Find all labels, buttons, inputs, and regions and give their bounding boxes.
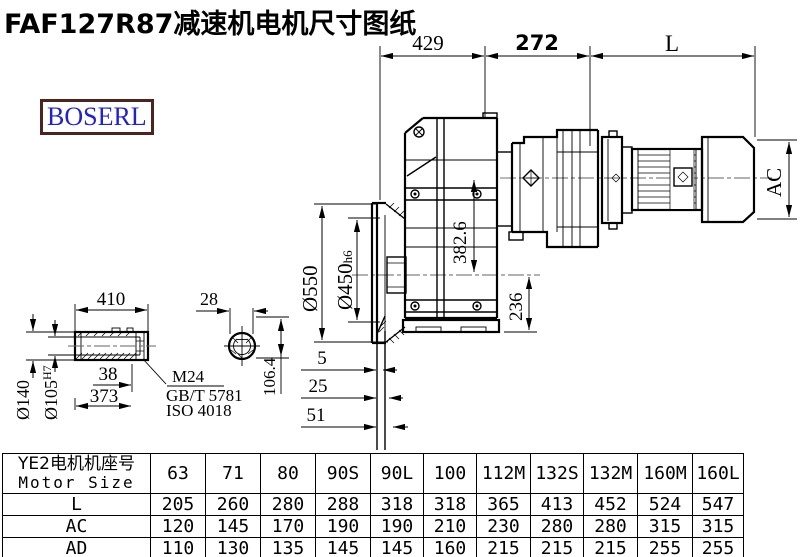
thread-callout: M24 — [172, 367, 205, 386]
table-cell: 318 — [424, 494, 477, 516]
table-column-header: 63 — [151, 454, 206, 494]
table-cell: 280 — [531, 516, 584, 538]
dim-410-label: 410 — [97, 289, 126, 310]
table-cell: 547 — [693, 494, 744, 516]
table-cell: 280 — [584, 516, 638, 538]
table-cell: 205 — [151, 494, 206, 516]
table-cell: 255 — [638, 538, 693, 557]
table-cell: 318 — [371, 494, 424, 516]
dim-5-label: 5 — [317, 348, 327, 369]
dim-450-label: Ø450h6 — [333, 250, 357, 310]
dimension-ac: AC — [757, 140, 797, 219]
table-column-header: 132S — [531, 454, 584, 494]
dim-25-label: 25 — [309, 376, 328, 397]
table-cell: 110 — [151, 538, 206, 557]
table-cell: 190 — [371, 516, 424, 538]
table-cell: 130 — [206, 538, 261, 557]
table-row-label: AD — [3, 538, 151, 557]
dim-51-label: 51 — [307, 405, 326, 426]
table-cell: 120 — [151, 516, 206, 538]
table-row: L205260280288318318365413452524547 — [3, 494, 744, 516]
table-cell: 210 — [424, 516, 477, 538]
table-cell: 280 — [261, 494, 316, 516]
dim-236-label: 236 — [506, 293, 527, 322]
table-column-header: 90S — [316, 454, 371, 494]
input-adapter — [509, 130, 598, 247]
table-cell: 524 — [638, 494, 693, 516]
table-row: AD110130135145145160215215215255255 — [3, 538, 744, 557]
table-column-header: 80 — [261, 454, 316, 494]
table-cell: 230 — [477, 516, 531, 538]
table-cell: 215 — [477, 538, 531, 557]
dimension-section: 28 106.4 — [196, 289, 289, 396]
dim-ac-label: AC — [762, 168, 786, 197]
table-cell: 145 — [206, 516, 261, 538]
table-cell: 288 — [316, 494, 371, 516]
hollow-shaft-detail — [68, 328, 156, 360]
dim-28-label: 28 — [200, 289, 218, 309]
dim-429-label: 429 — [412, 31, 444, 55]
table-header-motor-size: YE2电机机座号Motor Size — [3, 454, 151, 494]
table-cell: 365 — [477, 494, 531, 516]
table-row: AC120145170190190210230280280315315 — [3, 516, 744, 538]
table-cell: 452 — [584, 494, 638, 516]
table-cell: 145 — [371, 538, 424, 557]
table-cell: 215 — [584, 538, 638, 557]
table-cell: 413 — [531, 494, 584, 516]
dim-3826-label: 382.6 — [450, 221, 471, 264]
table-column-header: 112M — [477, 454, 531, 494]
table-cell: 260 — [206, 494, 261, 516]
table-cell: 135 — [261, 538, 316, 557]
table-column-header: 90L — [371, 454, 424, 494]
table-column-header: 160L — [693, 454, 744, 494]
table-column-header: 100 — [424, 454, 477, 494]
table-cell: 315 — [693, 516, 744, 538]
table-cell: 170 — [261, 516, 316, 538]
motor-size-table: YE2电机机座号Motor Size63718090S90L100112M132… — [2, 453, 744, 557]
dimension-axes: 382.6 236 — [450, 180, 537, 332]
dimension-top: 429 272 L — [380, 31, 755, 200]
table-cell: 315 — [638, 516, 693, 538]
table-cell: 145 — [316, 538, 371, 557]
table-header-row: YE2电机机座号Motor Size63718090S90L100112M132… — [3, 454, 744, 494]
table-cell: 215 — [531, 538, 584, 557]
table-column-header: 132M — [584, 454, 638, 494]
dim-38-label: 38 — [99, 364, 118, 385]
table-column-header: 71 — [206, 454, 261, 494]
dim-105-label: Ø105H7 — [40, 365, 61, 420]
dim-550-label: Ø550 — [298, 265, 322, 312]
shaft-section-circle — [224, 326, 260, 366]
dim-373-label: 373 — [90, 386, 119, 407]
table-cell: 160 — [424, 538, 477, 557]
dim-1064-label: 106.4 — [260, 357, 279, 396]
dimension-flange: Ø550 Ø450h6 — [298, 204, 388, 342]
table-cell: 255 — [693, 538, 744, 557]
standard-iso: ISO 4018 — [166, 401, 232, 420]
drawing-page: FAF127R87减速机电机尺寸图纸 BOSERL — [0, 0, 800, 557]
motor — [602, 131, 754, 229]
dimension-offsets: 5 25 51 — [301, 348, 408, 427]
output-flange — [372, 203, 406, 450]
table-column-header: 160M — [638, 454, 693, 494]
dim-L-label: L — [665, 31, 679, 56]
table-cell: 190 — [316, 516, 371, 538]
table-row-label: L — [3, 494, 151, 516]
table-row-label: AC — [3, 516, 151, 538]
dim-140-label: Ø140 — [13, 380, 33, 420]
dim-272-label: 272 — [515, 31, 559, 55]
